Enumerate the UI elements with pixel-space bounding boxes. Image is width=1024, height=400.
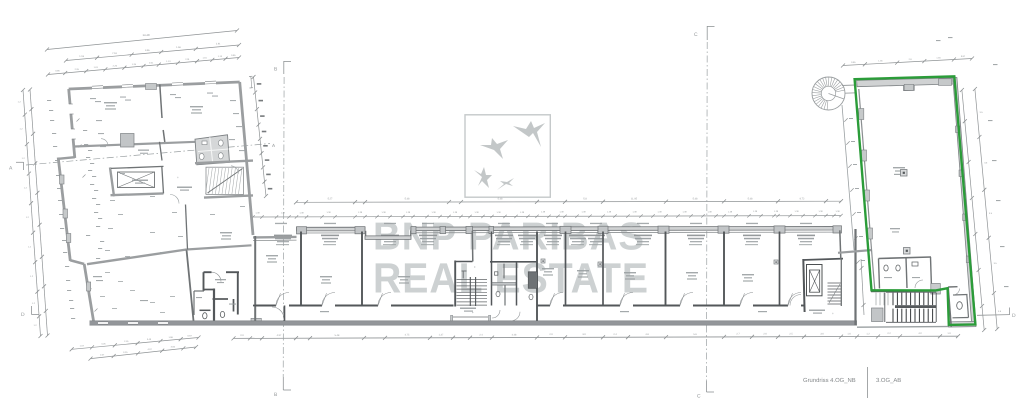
svg-text:5.48: 5.48 [748,197,753,200]
svg-text:+: + [474,265,476,269]
svg-text:3.65: 3.65 [145,49,150,52]
svg-text:1.56: 1.56 [176,46,181,49]
svg-text:+: + [832,312,834,316]
svg-text:5.48: 5.48 [693,197,698,200]
svg-text:Grundriss 4.OG_NB: Grundriss 4.OG_NB [803,377,856,384]
svg-text:3.OG_AB: 3.OG_AB [876,377,901,384]
svg-text:5.48: 5.48 [405,197,410,200]
svg-text:4.48: 4.48 [512,333,517,336]
svg-text:11.05: 11.05 [631,197,638,200]
svg-text:+: + [472,311,474,315]
svg-text:4.97: 4.97 [277,334,282,337]
svg-text:2.91: 2.91 [216,43,221,46]
svg-text:BNP PARIBAS: BNP PARIBAS [373,216,645,259]
svg-text:14.48: 14.48 [143,33,150,37]
svg-text:5.27: 5.27 [328,197,333,200]
svg-text:D: D [1012,313,1016,319]
svg-text:5.48: 5.48 [498,197,503,200]
svg-text:+: + [177,176,179,180]
svg-text:D: D [21,312,25,318]
svg-text:4.75: 4.75 [405,334,410,337]
svg-text:1.18: 1.18 [79,55,84,58]
svg-text:7.18: 7.18 [112,52,117,55]
svg-text:C: C [694,32,698,38]
svg-text:1.37: 1.37 [439,334,444,337]
svg-text:5.8: 5.8 [583,197,587,200]
svg-text:9.72: 9.72 [800,197,805,200]
svg-text:C: C [697,394,701,400]
svg-text:5.48: 5.48 [335,334,340,337]
